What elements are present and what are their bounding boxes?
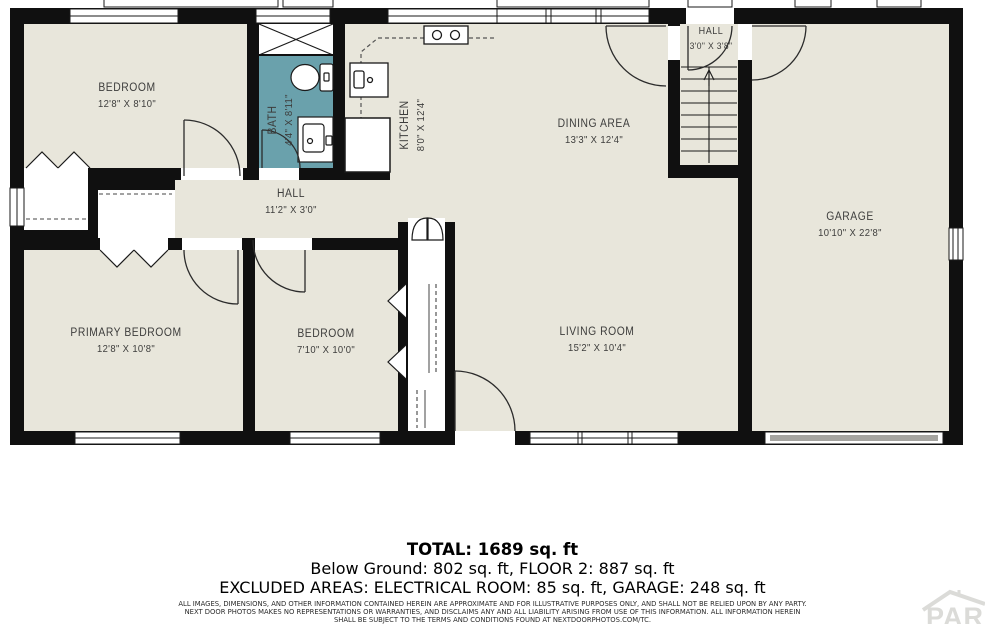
room-label-bath: BATH 4'4" X 8'11" (265, 94, 297, 146)
floor-plan-page: BEDROOM 12'8" X 8'10" BATH 4'4" X 8'11" … (0, 0, 985, 624)
toilet-icon (291, 64, 333, 91)
room-label-hall-upper: HALL 3'0" X 3'8" (690, 25, 733, 53)
garage-door (770, 435, 938, 441)
room-label-dining-area: DINING AREA 13'3" X 12'4" (558, 116, 631, 148)
disclaimer: ALL IMAGES, DIMENSIONS, AND OTHER INFORM… (0, 600, 985, 624)
svg-text:PAR: PAR (926, 602, 984, 624)
room-label-hall-main: HALL 11'2" X 3'0" (265, 186, 317, 218)
window-sills (104, 0, 921, 7)
floor-areas: Below Ground: 802 sq. ft, FLOOR 2: 887 s… (0, 559, 985, 578)
photographer-watermark: PAR (893, 564, 985, 624)
room-label-living-room: LIVING ROOM 15'2" X 10'4" (560, 324, 635, 356)
stove-icon (424, 26, 468, 44)
room-label-kitchen: KITCHEN 8'0" X 12'4" (397, 99, 429, 151)
room-label-bedroom-top: BEDROOM 12'8" X 8'10" (98, 80, 156, 112)
shower-icon (259, 24, 333, 55)
kitchen-sink-icon (350, 63, 388, 97)
room-label-primary-bedroom: PRIMARY BEDROOM 12'8" X 10'8" (70, 325, 181, 357)
bathroom-sink-icon (298, 117, 333, 162)
room-label-garage: GARAGE 10'10" X 22'8" (818, 209, 882, 241)
fridge-icon (345, 118, 390, 172)
excluded-areas: EXCLUDED AREAS: ELECTRICAL ROOM: 85 sq. … (0, 578, 985, 597)
room-label-bedroom-lower: BEDROOM 7'10" X 10'0" (297, 326, 355, 358)
area-summary: TOTAL: 1689 sq. ft Below Ground: 802 sq.… (0, 540, 985, 624)
total-area: TOTAL: 1689 sq. ft (0, 540, 985, 559)
